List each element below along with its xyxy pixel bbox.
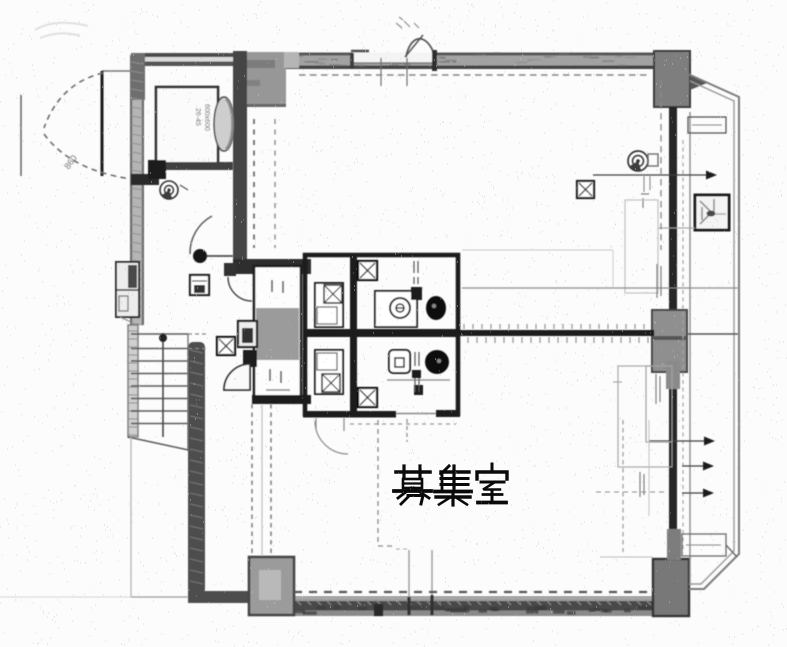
svg-text:600x600: 600x600 <box>203 104 210 131</box>
svg-text:26-45: 26-45 <box>194 108 201 126</box>
